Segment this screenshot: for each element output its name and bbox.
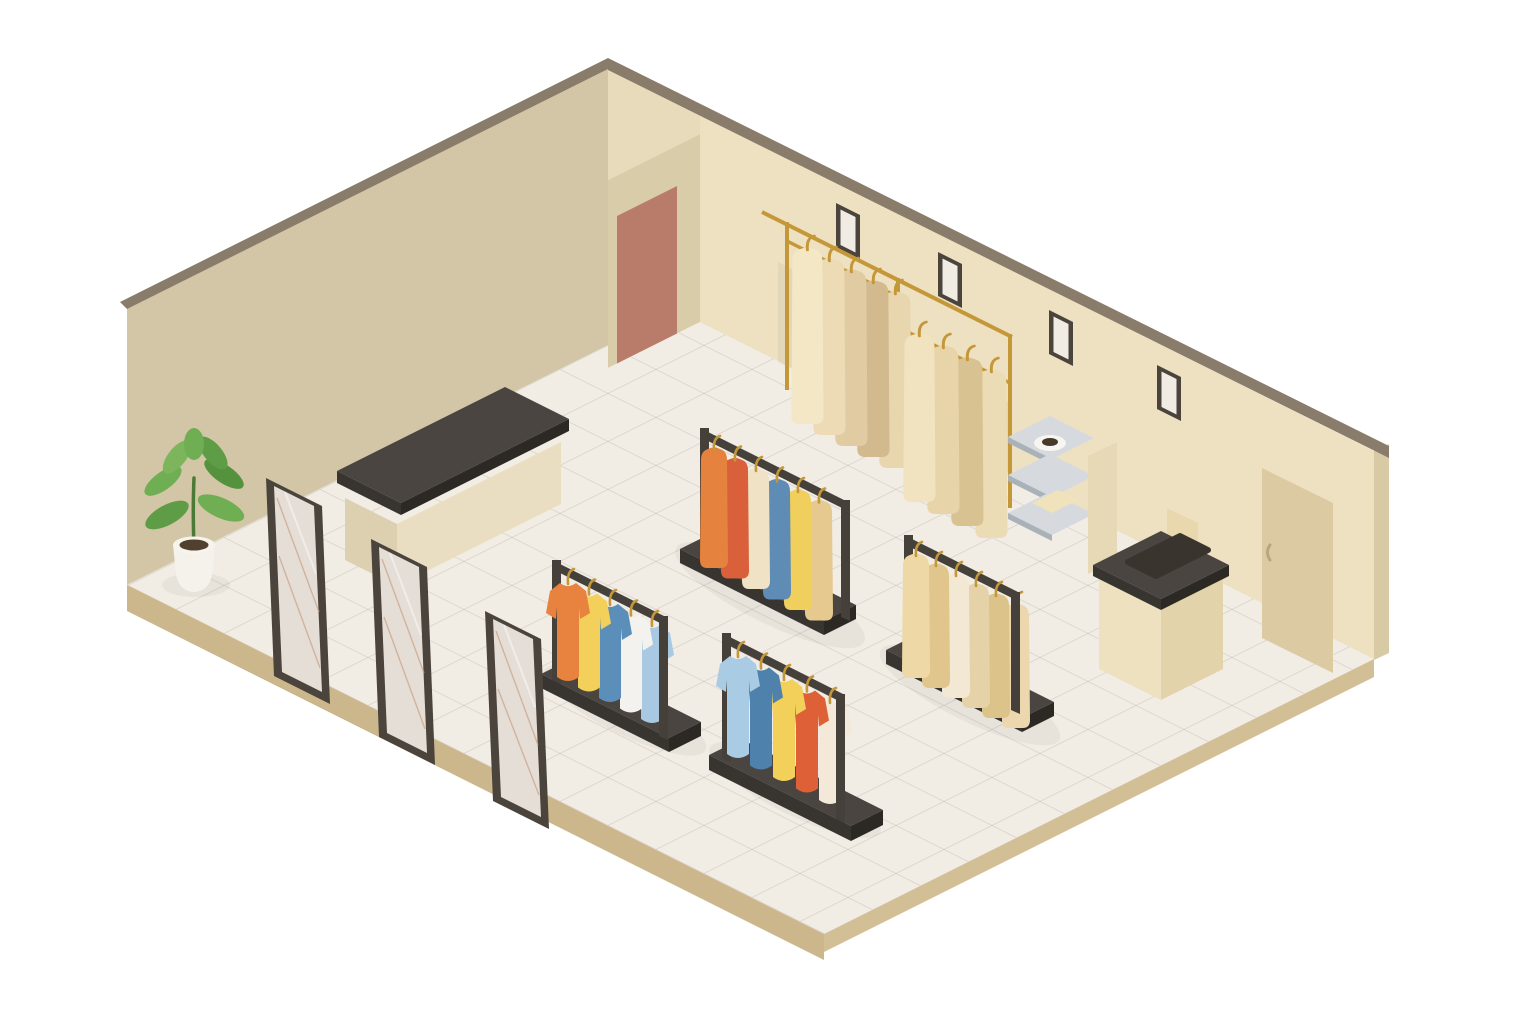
plant-soil	[180, 540, 209, 551]
frame-mat	[1162, 372, 1177, 415]
right-wall-side-edge	[1374, 444, 1389, 660]
garment	[902, 542, 930, 678]
rack-post	[836, 694, 845, 823]
store-scene-svg	[0, 0, 1536, 1024]
rack-post	[1011, 592, 1020, 714]
right-door-panel	[1262, 468, 1333, 673]
frame-mat	[841, 210, 856, 253]
mirror	[485, 611, 549, 829]
garment	[700, 436, 728, 568]
frame-mat	[1054, 317, 1069, 360]
display-panel	[1088, 442, 1117, 574]
rack-post	[659, 616, 668, 740]
mirror	[371, 539, 435, 765]
display-bowl-contents	[1042, 438, 1058, 446]
store-illustration	[0, 0, 1536, 1024]
mirror	[266, 478, 330, 704]
rack-post	[841, 500, 850, 621]
garment	[791, 236, 823, 424]
garment	[903, 322, 935, 502]
red-door	[617, 186, 677, 364]
frame-mat	[943, 259, 958, 302]
right-door	[1262, 468, 1333, 673]
